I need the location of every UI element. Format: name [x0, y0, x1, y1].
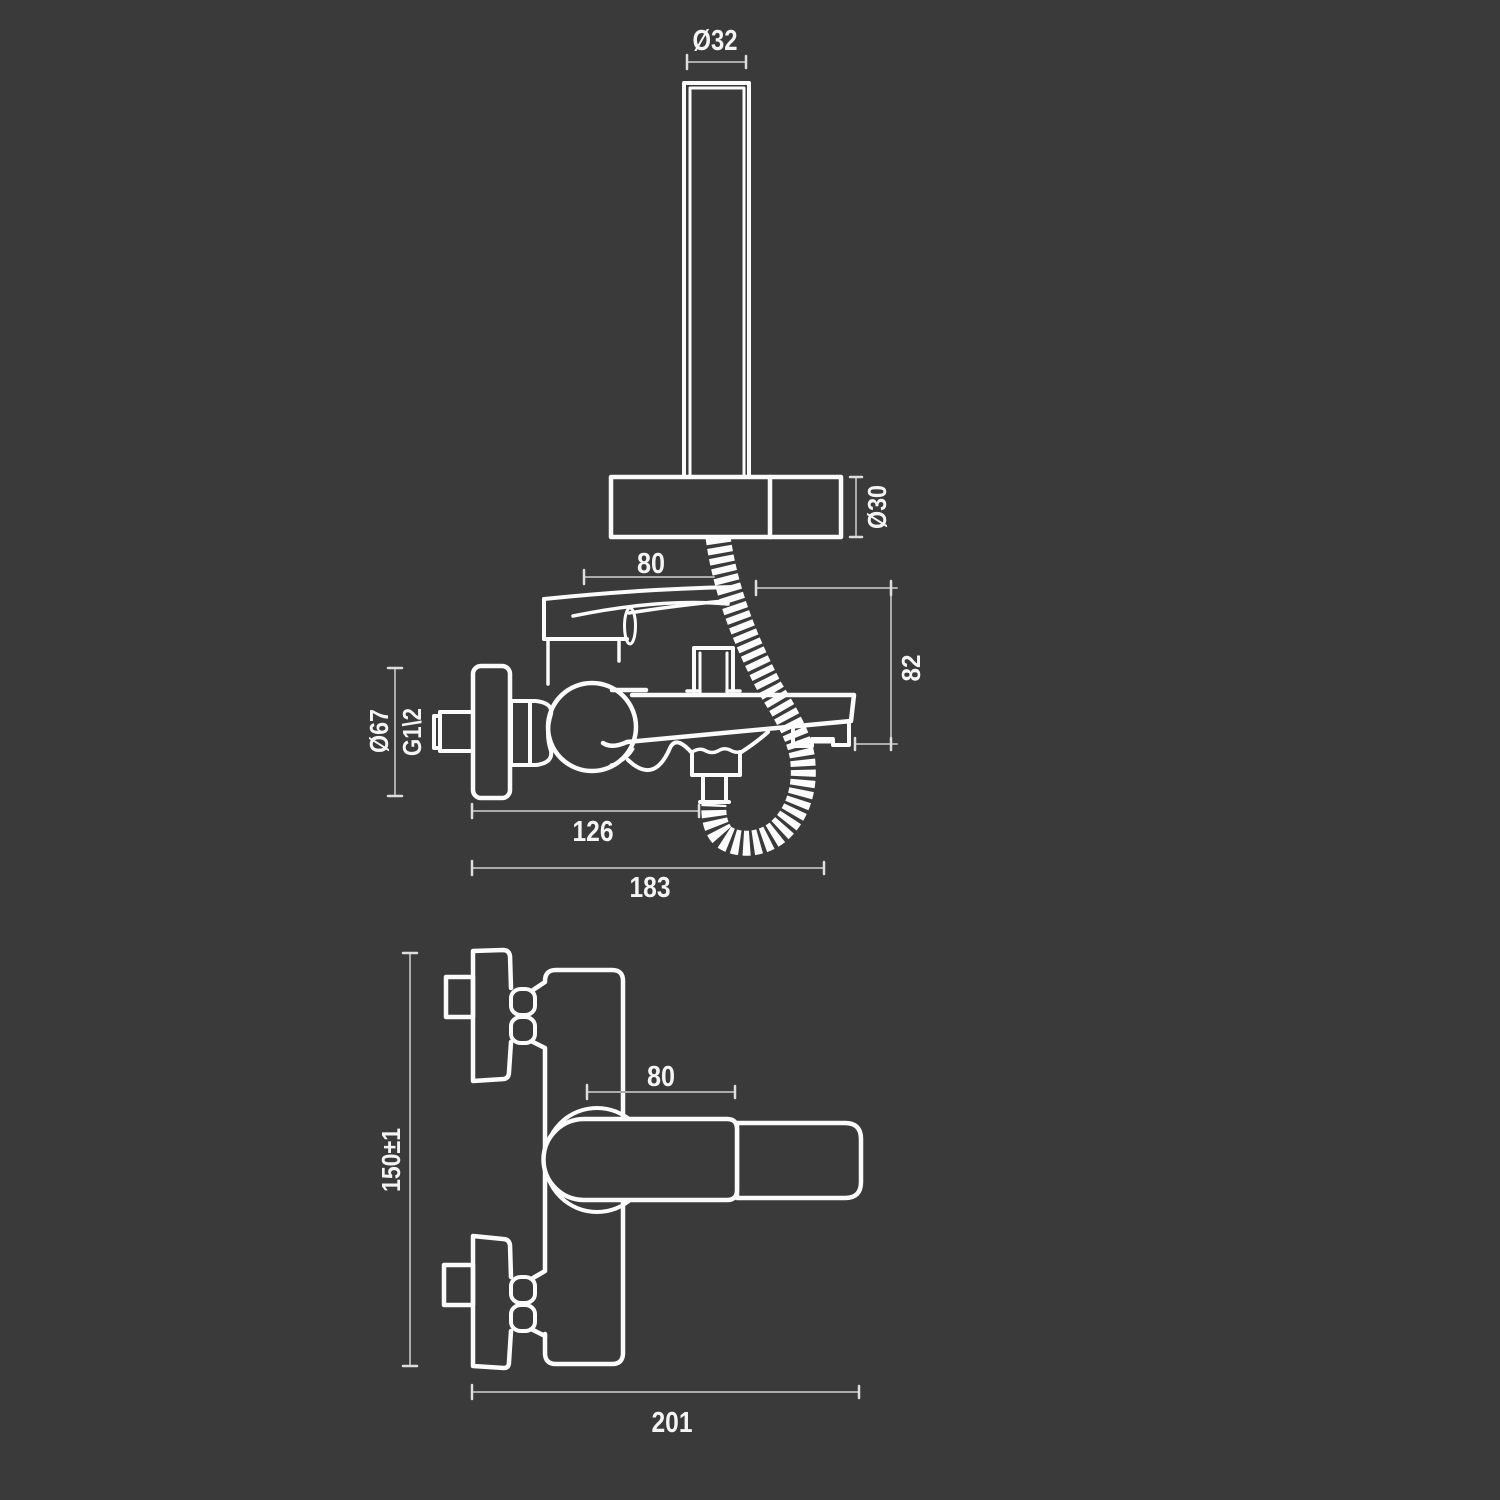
svg-text:126: 126	[573, 816, 614, 848]
svg-text:82: 82	[896, 655, 926, 682]
svg-text:G1\2: G1\2	[397, 708, 427, 756]
svg-text:Ø67: Ø67	[364, 709, 394, 753]
svg-text:150±1: 150±1	[376, 1128, 406, 1192]
svg-text:Ø30: Ø30	[862, 485, 892, 529]
svg-text:80: 80	[647, 1061, 675, 1093]
svg-text:183: 183	[630, 872, 671, 904]
svg-text:201: 201	[652, 1407, 693, 1439]
svg-text:80: 80	[637, 548, 665, 580]
svg-text:Ø32: Ø32	[693, 25, 738, 57]
